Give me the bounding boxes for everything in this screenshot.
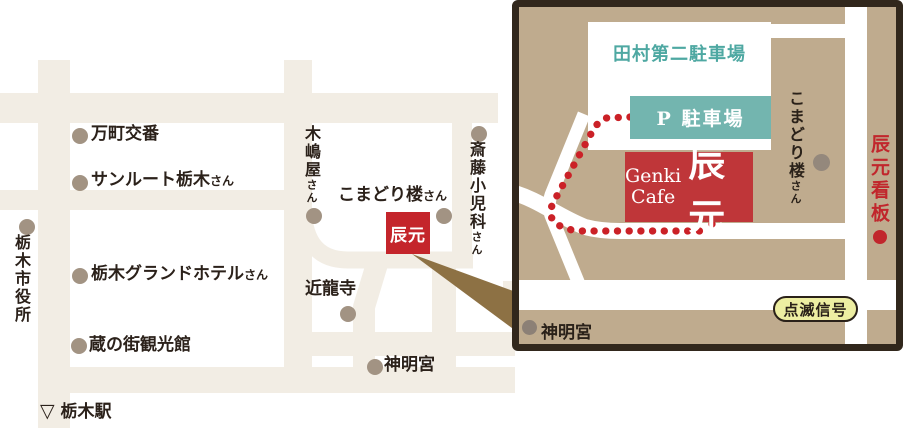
blinking-signal-badge: 点滅信号 [773, 296, 858, 322]
poi-dot-komadori [436, 208, 452, 224]
label-tatsumoto-signboard: 辰元看板 [869, 134, 888, 226]
label-shinmeigu-left: 神明宮 [384, 357, 435, 374]
poi-dot-kinryuji [340, 306, 356, 322]
label-saito-pediatrics: 斎藤小児科さん [468, 141, 484, 257]
poi-dot-cityhall [19, 219, 35, 235]
poi-dot-saito [471, 126, 487, 142]
poi-dot-kuranomachi [71, 338, 87, 354]
label-komadoriro-detail: こまどり楼さん [787, 90, 803, 206]
tatsumoto-marker-box: 辰元 [386, 212, 430, 254]
poi-dot-shinmeigu [367, 359, 383, 375]
poi-dot-manmachi [72, 128, 88, 144]
label-kuranomachi-kankokan: 蔵の街観光館 [89, 337, 191, 354]
label-kinryuji: 近龍寺 [305, 281, 356, 298]
poi-dot-grandhotel [72, 268, 88, 284]
poi-dot-shinmeigu-detail [522, 320, 537, 335]
cafe-name-en: Genki Cafe [625, 166, 681, 208]
poi-dot-sunroute [72, 175, 88, 191]
label-sunroute-tochigi: サンルート栃木さん [91, 172, 234, 189]
signboard-red-dot [873, 230, 887, 244]
label-shinmeigu-detail: 神明宮 [541, 318, 592, 343]
label-tochigi-grand-hotel: 栃木グランドホテルさん [91, 266, 268, 283]
detail-map-panel: 田村第二駐車場 P 駐車場 Genki Cafe 辰元 こまどり楼さん 辰元看板… [512, 0, 903, 351]
label-manmachi-koban: 万町交番 [91, 126, 159, 143]
map-graphic: 万町交番 サンルート栃木さん 栃木市役所 栃木グランドホテルさん 蔵の街観光館 … [0, 0, 903, 428]
poi-dot-komadori-detail [813, 154, 830, 171]
genki-cafe-box: Genki Cafe 辰元 [625, 152, 753, 222]
label-kijimaya: 木嶋屋さん [303, 125, 319, 205]
cafe-name-jp: 辰元 [688, 133, 753, 241]
label-komadoriro-left: こまどり楼さん [338, 187, 447, 204]
station-triangle-icon: ▽ [40, 400, 55, 422]
label-tochigi-station: ▽ 栃木駅 [40, 402, 112, 421]
label-tochigi-cityhall: 栃木市役所 [13, 234, 29, 324]
poi-dot-kijimaya [306, 208, 322, 224]
label-tamura-parking: 田村第二駐車場 [588, 40, 771, 66]
